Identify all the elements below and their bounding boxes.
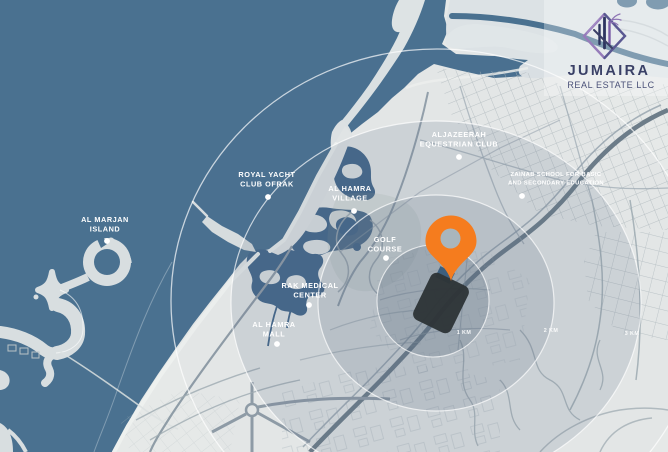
svg-text:RAK MEDICAL: RAK MEDICAL — [281, 281, 338, 290]
svg-text:ALJAZEERAH: ALJAZEERAH — [432, 130, 487, 139]
svg-text:VILLAGE: VILLAGE — [332, 194, 367, 203]
svg-text:JUMAIRA: JUMAIRA — [568, 63, 651, 79]
svg-text:ISLAND: ISLAND — [90, 225, 120, 234]
svg-text:ZAINAB SCHOOL FOR BASIC: ZAINAB SCHOOL FOR BASIC — [510, 172, 601, 178]
svg-text:3 KM: 3 KM — [625, 331, 640, 337]
svg-text:AL MARJAN: AL MARJAN — [81, 215, 129, 224]
svg-text:REAL ESTATE LLC: REAL ESTATE LLC — [567, 80, 654, 90]
svg-text:CLUB OFRAK: CLUB OFRAK — [240, 180, 294, 189]
svg-text:EQUESTRIAN CLUB: EQUESTRIAN CLUB — [420, 140, 498, 149]
svg-text:AL HAMRA: AL HAMRA — [328, 184, 371, 193]
svg-text:AL HAMRA: AL HAMRA — [252, 320, 295, 329]
svg-text:COURSE: COURSE — [368, 245, 403, 254]
svg-text:CENTER: CENTER — [293, 291, 326, 300]
svg-text:AND SECONDARY EDUCATION: AND SECONDARY EDUCATION — [508, 181, 604, 187]
svg-text:1 KM: 1 KM — [457, 330, 472, 336]
svg-text:2 KM: 2 KM — [544, 328, 559, 334]
svg-text:ROYAL YACHT: ROYAL YACHT — [238, 170, 295, 179]
svg-text:MALL: MALL — [263, 330, 285, 339]
svg-text:GOLF: GOLF — [374, 235, 396, 244]
